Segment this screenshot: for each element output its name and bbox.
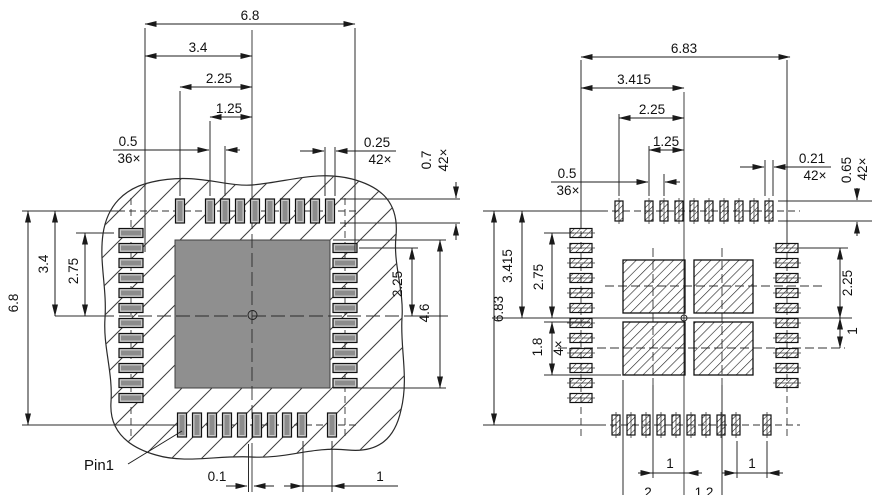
- dim-pad-length-count: 42×: [855, 158, 870, 181]
- dim-first-pin: 1.25: [653, 134, 679, 149]
- pin1-label: Pin1: [84, 457, 114, 474]
- package-pad-core: [121, 351, 141, 356]
- dim-pad-length: 0.65: [839, 157, 854, 183]
- package-pad-core: [225, 415, 230, 435]
- dim-center-offset: 0.1: [208, 469, 227, 484]
- thermal-pad-quadrant: [623, 322, 685, 375]
- dim-bottom-cut-b: 1.2: [695, 485, 714, 495]
- package-pad-core: [335, 261, 355, 266]
- dim-bottom-cut-a: 2: [644, 485, 652, 495]
- package-pad-core: [270, 415, 275, 435]
- package-pad-core: [335, 351, 355, 356]
- dim-pattern-height: 6.83: [491, 296, 506, 322]
- thermal-pad-quadrant: [623, 260, 685, 313]
- package-pad-core: [121, 231, 141, 236]
- package-pad-core: [121, 336, 141, 341]
- package-pad-core: [121, 396, 141, 401]
- package-pad-core: [253, 201, 258, 221]
- dim-half-height: 3.415: [500, 249, 515, 283]
- dim-quad-height: 1.8: [530, 338, 545, 357]
- dim-side-col-offset: 2.75: [531, 264, 546, 290]
- package-pad-core: [335, 291, 355, 296]
- land-pattern-drawing: 6.8 3.4 2.25 1.25 0.5 36× 0.25 42× 0.7 4…: [0, 0, 880, 495]
- package-pad-core: [335, 336, 355, 341]
- dim-pitch-count: 36×: [557, 183, 580, 198]
- dim-pad-width-count: 42×: [804, 168, 827, 183]
- package-pad-core: [298, 201, 303, 221]
- dim-half-height: 3.4: [36, 254, 51, 273]
- package-pad-core: [335, 366, 355, 371]
- package-pad-core: [285, 415, 290, 435]
- dim-pitch: 0.5: [558, 166, 577, 181]
- package-pad-core: [328, 201, 333, 221]
- thermal-paste-quadrants: [623, 260, 753, 375]
- package-pad-core: [240, 415, 245, 435]
- dim-corner-pin: 2.25: [206, 71, 232, 86]
- dim-pad-width: 0.25: [364, 135, 390, 150]
- package-pad-core: [335, 276, 355, 281]
- thermal-pad-quadrant: [694, 322, 753, 375]
- package-pad-core: [121, 366, 141, 371]
- dim-right-col-offset: 2.25: [390, 271, 405, 297]
- dim-package-height: 6.8: [6, 294, 21, 313]
- package-pad-core: [335, 246, 355, 251]
- package-pad-core: [335, 321, 355, 326]
- dim-package-width: 6.8: [241, 8, 260, 23]
- package-pad-core: [283, 201, 288, 221]
- package-pad-core: [210, 415, 215, 435]
- package-pad-core: [178, 201, 183, 221]
- dim-first-pin: 1.25: [216, 101, 242, 116]
- package-pad-core: [121, 276, 141, 281]
- dim-right-col-offset: 2.25: [840, 270, 855, 296]
- dim-pad-width-count: 42×: [369, 152, 392, 167]
- package-pad-core: [121, 246, 141, 251]
- package-pad-core: [223, 201, 228, 221]
- package-pad-core: [121, 306, 141, 311]
- thermal-pad-quadrant: [694, 260, 753, 313]
- dim-pitch: 0.5: [119, 134, 138, 149]
- dim-half-width: 3.4: [189, 40, 208, 55]
- package-pad-core: [121, 261, 141, 266]
- dim-corner-gap: 1: [376, 469, 384, 484]
- package-pad-core: [335, 381, 355, 386]
- dim-bottom-right-gap: 1: [748, 456, 756, 471]
- package-pad-core: [335, 306, 355, 311]
- dim-quad-count: 4×: [551, 340, 566, 355]
- dim-pad-width: 0.21: [799, 151, 825, 166]
- package-pad-core: [330, 415, 335, 435]
- package-pad-core: [208, 201, 213, 221]
- dim-half-width: 3.415: [617, 72, 651, 87]
- package-pad-core: [268, 201, 273, 221]
- package-pad-core: [121, 321, 141, 326]
- dim-pad-length-count: 42×: [436, 149, 451, 172]
- package-pad-core: [255, 415, 260, 435]
- dim-quad-row-offset: 1: [845, 327, 860, 335]
- package-pad-core: [121, 381, 141, 386]
- package-pad-core: [195, 415, 200, 435]
- dim-pitch-count: 36×: [118, 151, 141, 166]
- package-pad-core: [238, 201, 243, 221]
- technical-drawing-page: 6.8 3.4 2.25 1.25 0.5 36× 0.25 42× 0.7 4…: [0, 0, 880, 495]
- solder-land-pattern-view: 6.83 3.415 2.25 1.25 0.5 36× 0.21 42× 0.…: [483, 41, 872, 495]
- dim-pattern-width: 6.83: [671, 41, 697, 56]
- exposed-die-pad: [175, 240, 330, 388]
- dim-bottom-left-gap: 1: [666, 456, 674, 471]
- dim-die-size: 4.6: [417, 304, 432, 323]
- dim-side-col-offset: 2.75: [66, 258, 81, 284]
- package-pad-core: [121, 291, 141, 296]
- package-pad-core: [300, 415, 305, 435]
- package-pad-core: [313, 201, 318, 221]
- dim-corner-pin: 2.25: [639, 102, 665, 117]
- dim-pad-length: 0.7: [419, 151, 434, 170]
